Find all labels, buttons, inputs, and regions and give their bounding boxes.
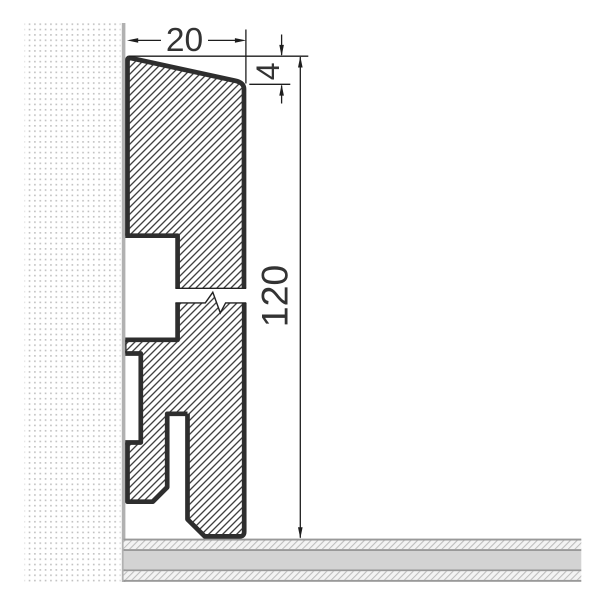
svg-text:120: 120 <box>254 265 296 328</box>
svg-text:4: 4 <box>250 62 286 80</box>
svg-text:20: 20 <box>166 22 203 59</box>
